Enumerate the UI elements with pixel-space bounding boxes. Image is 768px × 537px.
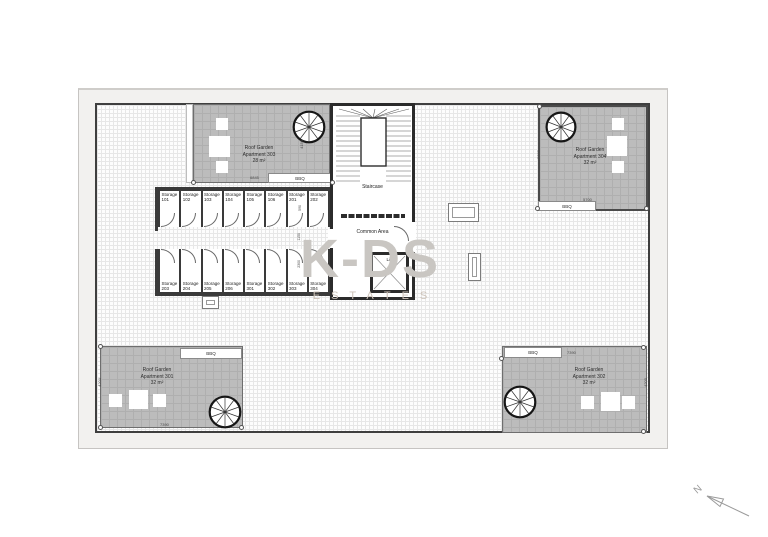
storage-room-202: Storage 202 bbox=[309, 191, 330, 227]
staircase-label: Staircase bbox=[333, 184, 412, 190]
dimension-label: 4200 bbox=[97, 378, 102, 387]
door-arc-icon bbox=[310, 213, 324, 227]
dimension-label: 7390 bbox=[567, 350, 576, 355]
spiral-stair-304-icon bbox=[545, 111, 577, 143]
storage-label: Storage 202 bbox=[310, 192, 326, 202]
storage-label: Storage 304 bbox=[310, 281, 326, 291]
storage-label: Storage 101 bbox=[162, 192, 178, 202]
bbq-area-top: BBQ bbox=[268, 173, 332, 183]
storage-wall bbox=[155, 292, 332, 296]
pergola-square bbox=[109, 394, 122, 407]
storage-label: Storage 102 bbox=[183, 192, 199, 202]
pergola-square bbox=[612, 118, 624, 130]
dimension-label: 4150 bbox=[299, 140, 304, 149]
storage-label: Storage 203 bbox=[162, 281, 178, 291]
storage-room-106: Storage 106 bbox=[266, 191, 287, 227]
storage-room-302: Storage 302 bbox=[266, 249, 287, 292]
storage-label: Storage 103 bbox=[204, 192, 220, 202]
bbq-label: BBQ bbox=[206, 351, 216, 356]
survey-marker bbox=[644, 206, 649, 211]
survey-marker bbox=[98, 344, 103, 349]
storage-row-bottom: Storage 203 Storage 204 Storage 205 Stor… bbox=[158, 249, 330, 292]
dimension-label: 7390 bbox=[160, 422, 169, 427]
storage-room-206: Storage 206 bbox=[224, 249, 245, 292]
pergola-square bbox=[153, 394, 166, 407]
lift: Lift bbox=[370, 252, 409, 293]
spiral-stair-303-icon bbox=[292, 110, 326, 144]
storage-row-top: Storage 101 Storage 102 Storage 103 Stor… bbox=[158, 191, 330, 227]
survey-marker bbox=[535, 206, 540, 211]
bbq-label: BBQ bbox=[562, 204, 572, 209]
pergola-square bbox=[601, 392, 620, 411]
storage-label: Storage 301 bbox=[247, 281, 263, 291]
dimension-label: 590 bbox=[298, 205, 302, 211]
bbq-area-bottom-left: BBQ bbox=[180, 348, 242, 359]
door-arc-icon bbox=[246, 213, 260, 227]
survey-marker bbox=[499, 356, 504, 361]
storage-room-203: Storage 203 bbox=[158, 249, 181, 292]
pergola-square bbox=[216, 118, 228, 130]
storage-room-301: Storage 301 bbox=[245, 249, 266, 292]
pergola-square bbox=[622, 396, 635, 409]
door-arc-icon bbox=[225, 249, 239, 263]
corridor-opening bbox=[328, 229, 334, 248]
pergola-square bbox=[129, 390, 148, 409]
survey-marker bbox=[537, 104, 542, 109]
bbq-area-right: BBQ bbox=[538, 201, 596, 211]
door-arc-icon bbox=[246, 249, 260, 263]
floor-plan-page: Roof Garden Apartment 303 28 m² BBQ 6845… bbox=[0, 0, 768, 537]
survey-marker bbox=[191, 180, 196, 185]
dimension-label: 6845 bbox=[250, 175, 259, 180]
storage-room-103: Storage 103 bbox=[203, 191, 224, 227]
survey-marker bbox=[98, 425, 103, 430]
dimension-label: 1150 bbox=[297, 233, 301, 241]
staircase-treads-icon bbox=[335, 108, 412, 192]
garden-304-label: Roof Garden Apartment 304 32 m² bbox=[547, 147, 633, 167]
door-arc-icon bbox=[182, 249, 196, 263]
door-arc-icon bbox=[204, 213, 218, 227]
skylight bbox=[448, 203, 479, 222]
storage-label: Storage 206 bbox=[225, 281, 241, 291]
storage-label: Storage 204 bbox=[183, 281, 199, 291]
storage-room-204: Storage 204 bbox=[181, 249, 202, 292]
skylight-inner bbox=[452, 207, 475, 218]
door-arc-icon bbox=[225, 213, 239, 227]
north-arrow-icon: N bbox=[683, 470, 758, 525]
dimension-label: 2300 bbox=[297, 260, 301, 268]
storage-label: Storage 106 bbox=[268, 192, 284, 202]
garden-301-label: Roof Garden Apartment 301 32 m² bbox=[114, 367, 200, 387]
storage-label: Storage 302 bbox=[268, 281, 284, 291]
north-label: N bbox=[692, 483, 705, 496]
storage-label: Storage 205 bbox=[204, 281, 220, 291]
storage-room-205: Storage 205 bbox=[203, 249, 224, 292]
storage-label: Storage 104 bbox=[225, 192, 241, 202]
storage-room-303: Storage 303 bbox=[288, 249, 309, 292]
chimney-vent bbox=[468, 253, 481, 281]
pergola-square bbox=[581, 396, 594, 409]
railing-bar bbox=[341, 214, 405, 218]
survey-marker bbox=[641, 429, 646, 434]
storage-room-304: Storage 304 bbox=[309, 249, 330, 292]
storage-room-102: Storage 102 bbox=[181, 191, 202, 227]
door-arc-icon bbox=[182, 213, 196, 227]
bbq-label: BBQ bbox=[295, 176, 305, 181]
chimney-vent-inner bbox=[472, 257, 477, 277]
storage-room-105: Storage 105 bbox=[245, 191, 266, 227]
service-box bbox=[202, 296, 219, 309]
door-arc-icon bbox=[161, 213, 175, 227]
storage-room-101: Storage 101 bbox=[158, 191, 181, 227]
planter-strip bbox=[186, 104, 193, 183]
spiral-stair-301-icon bbox=[208, 395, 242, 429]
storage-room-104: Storage 104 bbox=[224, 191, 245, 227]
garden-302-label: Roof Garden Apartment 302 32 m² bbox=[546, 367, 632, 387]
door-arc-icon bbox=[204, 249, 218, 263]
staircase-core: Staircase Common Area Lift bbox=[330, 103, 415, 300]
door-arc-icon bbox=[310, 249, 324, 263]
bbq-label: BBQ bbox=[528, 350, 538, 355]
door-arc-icon bbox=[289, 213, 303, 227]
dimension-label: 5700 bbox=[583, 197, 592, 202]
storage-label: Storage 201 bbox=[289, 192, 305, 202]
survey-marker bbox=[239, 425, 244, 430]
door-arc-icon bbox=[267, 213, 281, 227]
door-arc-icon bbox=[267, 249, 281, 263]
storage-label: Storage 105 bbox=[247, 192, 263, 202]
door-arc-icon bbox=[161, 249, 175, 263]
bbq-area-bottom-right: BBQ bbox=[504, 347, 562, 358]
storage-label: Storage 303 bbox=[289, 281, 305, 291]
garden-303-label: Roof Garden Apartment 303 28 m² bbox=[216, 145, 302, 165]
spiral-stair-302-icon bbox=[503, 385, 537, 419]
survey-marker bbox=[330, 180, 335, 185]
dimension-label: 4200 bbox=[643, 378, 648, 387]
service-box-inner bbox=[206, 300, 215, 305]
survey-marker bbox=[641, 345, 646, 350]
lift-label: Lift bbox=[385, 257, 393, 262]
dimension-label: 5300 bbox=[536, 150, 541, 159]
door-opening bbox=[410, 222, 416, 252]
